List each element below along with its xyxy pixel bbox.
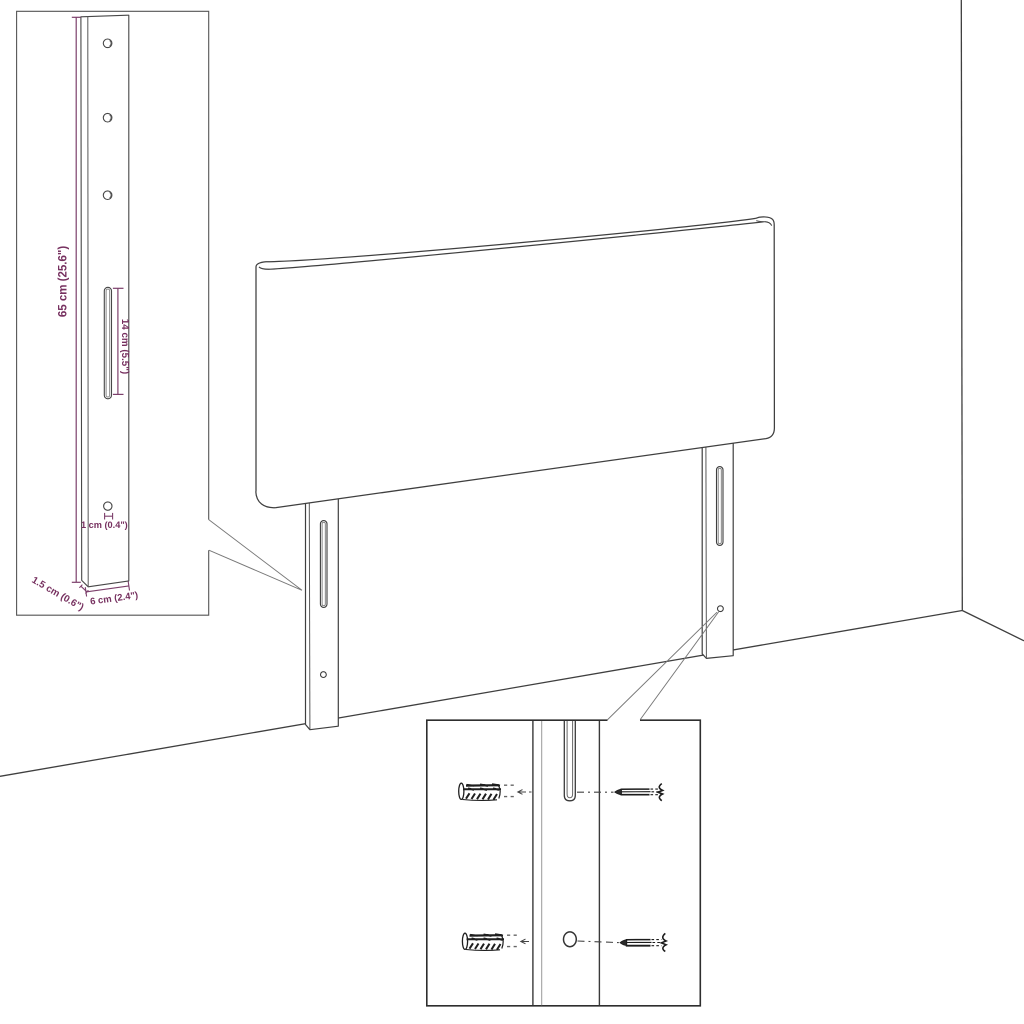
svg-text:1 cm (0.4"): 1 cm (0.4") [81,520,128,530]
svg-text:65 cm (25.6"): 65 cm (25.6") [57,246,69,317]
svg-text:14 cm (5.5"): 14 cm (5.5") [119,319,130,374]
